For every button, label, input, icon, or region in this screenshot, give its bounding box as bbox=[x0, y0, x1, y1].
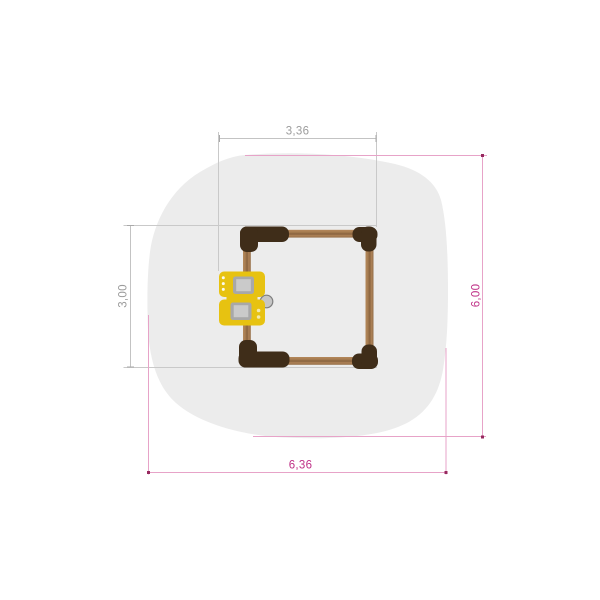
safety-area-blob bbox=[147, 153, 448, 438]
dimension-tick bbox=[445, 471, 448, 474]
plan-drawing-canvas: 3,36 3,00 6,00 6,36 bbox=[0, 0, 600, 600]
play-panel bbox=[219, 272, 273, 326]
safety-area bbox=[147, 153, 448, 438]
dimension-label-equipment-height: 3,00 bbox=[118, 284, 130, 308]
dimension-label-safety-width: 6,36 bbox=[289, 460, 313, 472]
dimension-label-safety-height: 6,00 bbox=[471, 284, 483, 308]
dimension-tick bbox=[481, 154, 484, 157]
plan-drawing: 3,36 3,00 6,00 6,36 bbox=[0, 0, 600, 600]
wood-beam-right bbox=[366, 245, 374, 355]
dimension-tick bbox=[147, 471, 150, 474]
dimension-label-equipment-width: 3,36 bbox=[286, 126, 310, 138]
panel-window-bottom bbox=[231, 303, 252, 321]
panel-window-top bbox=[233, 277, 254, 295]
panel-dots-left bbox=[222, 276, 225, 291]
wood-beam-bottom bbox=[287, 357, 357, 365]
dimension-tick bbox=[481, 436, 484, 439]
wood-beam-top bbox=[286, 230, 356, 238]
